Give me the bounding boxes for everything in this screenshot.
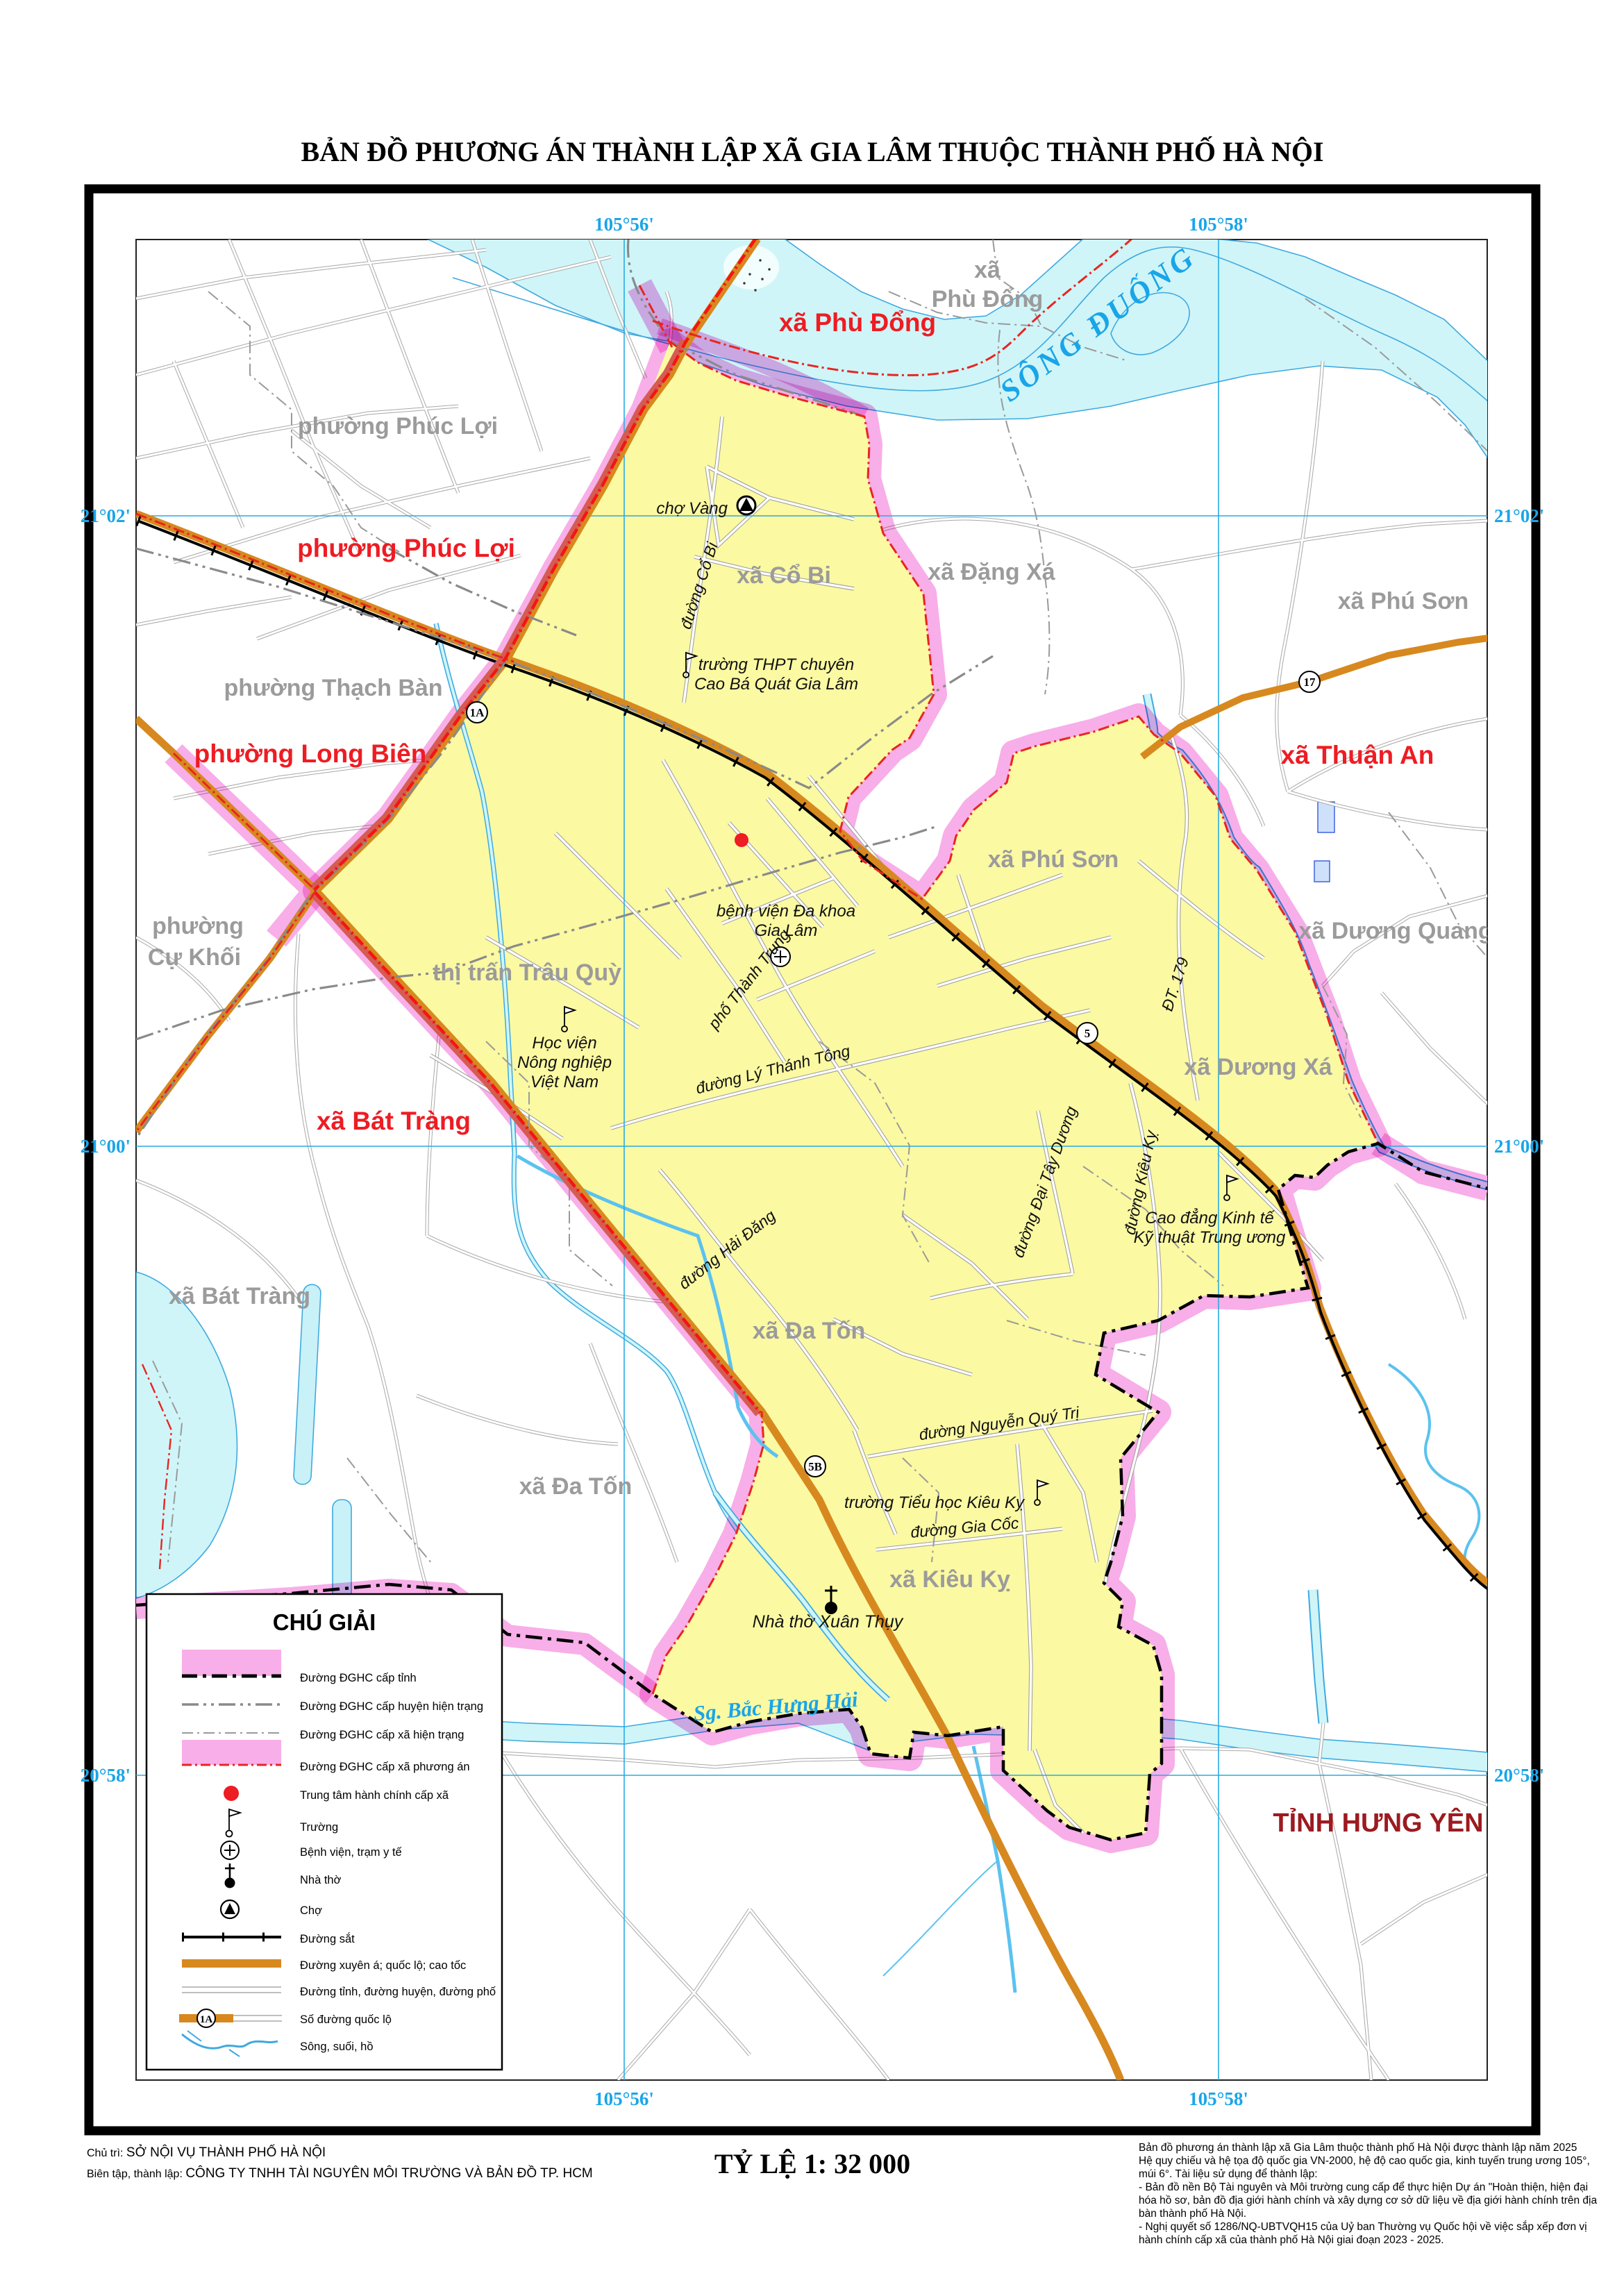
svg-text:Đường ĐGHC cấp tỉnh: Đường ĐGHC cấp tỉnh <box>300 1672 417 1684</box>
svg-text:Bản đồ phương án thành lập xã: Bản đồ phương án thành lập xã Gia Lâm th… <box>1139 2142 1577 2154</box>
svg-text:trường Tiểu học Kiêu Kỵ: trường Tiểu học Kiêu Kỵ <box>844 1493 1026 1512</box>
svg-text:21°02': 21°02' <box>81 505 131 526</box>
svg-text:Đường ĐGHC cấp huyện hiện trạn: Đường ĐGHC cấp huyện hiện trạng <box>300 1700 483 1713</box>
svg-text:Trung tâm hành chính cấp xã: Trung tâm hành chính cấp xã <box>300 1789 449 1802</box>
svg-text:105°56': 105°56' <box>594 214 654 235</box>
svg-text:Biên tập, thành lập: CÔNG TY T: Biên tập, thành lập: CÔNG TY TNHH TÀI NG… <box>87 2165 593 2181</box>
svg-text:chợ Vàng: chợ Vàng <box>656 499 728 518</box>
svg-text:5: 5 <box>1085 1027 1091 1040</box>
svg-text:xã Phú Sơn: xã Phú Sơn <box>988 846 1119 873</box>
svg-text:xã Phù Đổng: xã Phù Đổng <box>779 308 936 337</box>
svg-text:xã Bát Tràng: xã Bát Tràng <box>317 1107 471 1135</box>
svg-text:105°58': 105°58' <box>1189 2088 1248 2109</box>
svg-text:xã Kiêu Kỵ: xã Kiêu Kỵ <box>889 1566 1010 1593</box>
svg-text:21°00': 21°00' <box>1494 1136 1544 1157</box>
svg-text:Đường xuyên á; quốc lộ; cao tố: Đường xuyên á; quốc lộ; cao tốc <box>300 1959 466 1972</box>
svg-text:- Bản đồ nền Bộ Tài nguyên và: - Bản đồ nền Bộ Tài nguyên và Môi trường… <box>1139 2181 1588 2193</box>
svg-text:1A: 1A <box>470 706 485 719</box>
svg-text:Cao đẳng Kinh tế: Cao đẳng Kinh tế <box>1145 1207 1275 1227</box>
svg-text:20°58': 20°58' <box>81 1765 131 1786</box>
svg-text:Đường ĐGHC cấp xã hiện trạng: Đường ĐGHC cấp xã hiện trạng <box>300 1729 464 1741</box>
svg-text:Chủ trì: SỞ NỘI VỤ THÀNH PHỐ: Chủ trì: SỞ NỘI VỤ THÀNH PHỐ HÀ NỘI <box>87 2145 326 2160</box>
svg-text:Việt Nam: Việt Nam <box>530 1073 598 1091</box>
svg-text:xã Thuận An: xã Thuận An <box>1281 741 1434 769</box>
svg-text:105°58': 105°58' <box>1189 214 1248 235</box>
svg-text:- Nghị quyết số 1286/NQ-UBTVQH: - Nghị quyết số 1286/NQ-UBTVQH15 của Uỷ … <box>1139 2221 1587 2233</box>
svg-text:xã Dương Xá: xã Dương Xá <box>1184 1054 1332 1080</box>
svg-text:TỈNH HƯNG YÊN: TỈNH HƯNG YÊN <box>1273 1807 1483 1838</box>
svg-text:Nhà thờ: Nhà thờ <box>300 1874 342 1886</box>
svg-text:105°56': 105°56' <box>594 2088 654 2109</box>
svg-text:hành chính cấp xã của thành ph: hành chính cấp xã của thành phố Hà Nội g… <box>1139 2234 1444 2246</box>
svg-text:Đường sắt: Đường sắt <box>300 1932 355 1945</box>
svg-text:Kỹ thuật Trung ương: Kỹ thuật Trung ương <box>1134 1228 1286 1247</box>
svg-text:Đường ĐGHC cấp xã phương án: Đường ĐGHC cấp xã phương án <box>300 1761 470 1773</box>
svg-text:TỶ LỆ 1: 32 000: TỶ LỆ 1: 32 000 <box>714 2148 910 2179</box>
svg-text:Số đường quốc lộ: Số đường quốc lộ <box>300 2013 392 2026</box>
svg-text:17: 17 <box>1304 676 1316 689</box>
svg-text:Trường: Trường <box>300 1821 338 1834</box>
svg-text:bệnh viện Đa khoa: bệnh viện Đa khoa <box>717 902 855 921</box>
svg-text:1A: 1A <box>200 2014 213 2025</box>
svg-text:BẢN ĐỒ PHƯƠNG ÁN THÀNH LẬP XÃ: BẢN ĐỒ PHƯƠNG ÁN THÀNH LẬP XÃ GIA LÂM TH… <box>301 135 1323 167</box>
svg-text:CHÚ GIẢI: CHÚ GIẢI <box>273 1609 376 1635</box>
svg-text:xã Đa Tốn: xã Đa Tốn <box>519 1473 632 1500</box>
svg-text:phường Phúc Lợi: phường Phúc Lợi <box>297 534 515 562</box>
svg-text:Sông, suối, hồ: Sông, suối, hồ <box>300 2041 374 2053</box>
svg-text:Học viện: Học viện <box>532 1034 596 1053</box>
svg-text:Hệ quy chiếu và hệ tọa độ quốc: Hệ quy chiếu và hệ tọa độ quốc gia VN-20… <box>1139 2155 1590 2167</box>
svg-text:20°58': 20°58' <box>1494 1765 1544 1786</box>
svg-text:thị trấn Trâu Quỳ: thị trấn Trâu Quỳ <box>433 960 621 986</box>
svg-text:Cao Bá Quát Gia Lâm: Cao Bá Quát Gia Lâm <box>694 675 858 694</box>
svg-text:phường Long Biên: phường Long Biên <box>194 739 427 768</box>
svg-text:phường: phường <box>152 913 244 939</box>
svg-text:Đường tỉnh, đường huyện, đường: Đường tỉnh, đường huyện, đường phố <box>300 1986 496 1998</box>
svg-text:phường Thạch Bàn: phường Thạch Bàn <box>224 675 442 701</box>
svg-text:5B: 5B <box>808 1460 822 1473</box>
svg-text:xã: xã <box>974 257 1001 283</box>
svg-text:Nông nghiệp: Nông nghiệp <box>517 1053 612 1072</box>
svg-text:21°00': 21°00' <box>81 1136 131 1157</box>
svg-text:Nhà thờ Xuân Thụy: Nhà thờ Xuân Thụy <box>753 1612 904 1632</box>
svg-text:Chợ: Chợ <box>300 1904 322 1917</box>
svg-text:xã Dương Quang: xã Dương Quang <box>1298 918 1492 944</box>
svg-text:bàn thành phố Hà Nội.: bàn thành phố Hà Nội. <box>1139 2208 1246 2220</box>
svg-text:Cự Khối: Cự Khối <box>148 944 241 971</box>
svg-text:trường THPT chuyên: trường THPT chuyên <box>698 655 854 674</box>
svg-text:xã Bát Tràng: xã Bát Tràng <box>169 1283 310 1309</box>
svg-text:hóa hồ sơ, bản đồ địa giới hàn: hóa hồ sơ, bản đồ địa giới hành chính và… <box>1139 2195 1597 2206</box>
svg-text:xã Đặng Xá: xã Đặng Xá <box>928 559 1055 585</box>
svg-text:xã Cổ Bi: xã Cổ Bi <box>737 562 831 589</box>
svg-text:múi 6°. Tài liệu sử dụng để th: múi 6°. Tài liệu sử dụng để thành lập: <box>1139 2168 1318 2180</box>
svg-text:Phù Đổng: Phù Đổng <box>932 286 1044 312</box>
svg-text:xã Đa Tốn: xã Đa Tốn <box>753 1318 865 1344</box>
svg-text:Bệnh viện, trạm y tế: Bệnh viện, trạm y tế <box>300 1846 402 1859</box>
svg-text:21°02': 21°02' <box>1494 505 1544 526</box>
svg-text:xã Phú Sơn: xã Phú Sơn <box>1338 588 1469 614</box>
svg-text:phường Phúc Lợi: phường Phúc Lợi <box>298 413 498 439</box>
